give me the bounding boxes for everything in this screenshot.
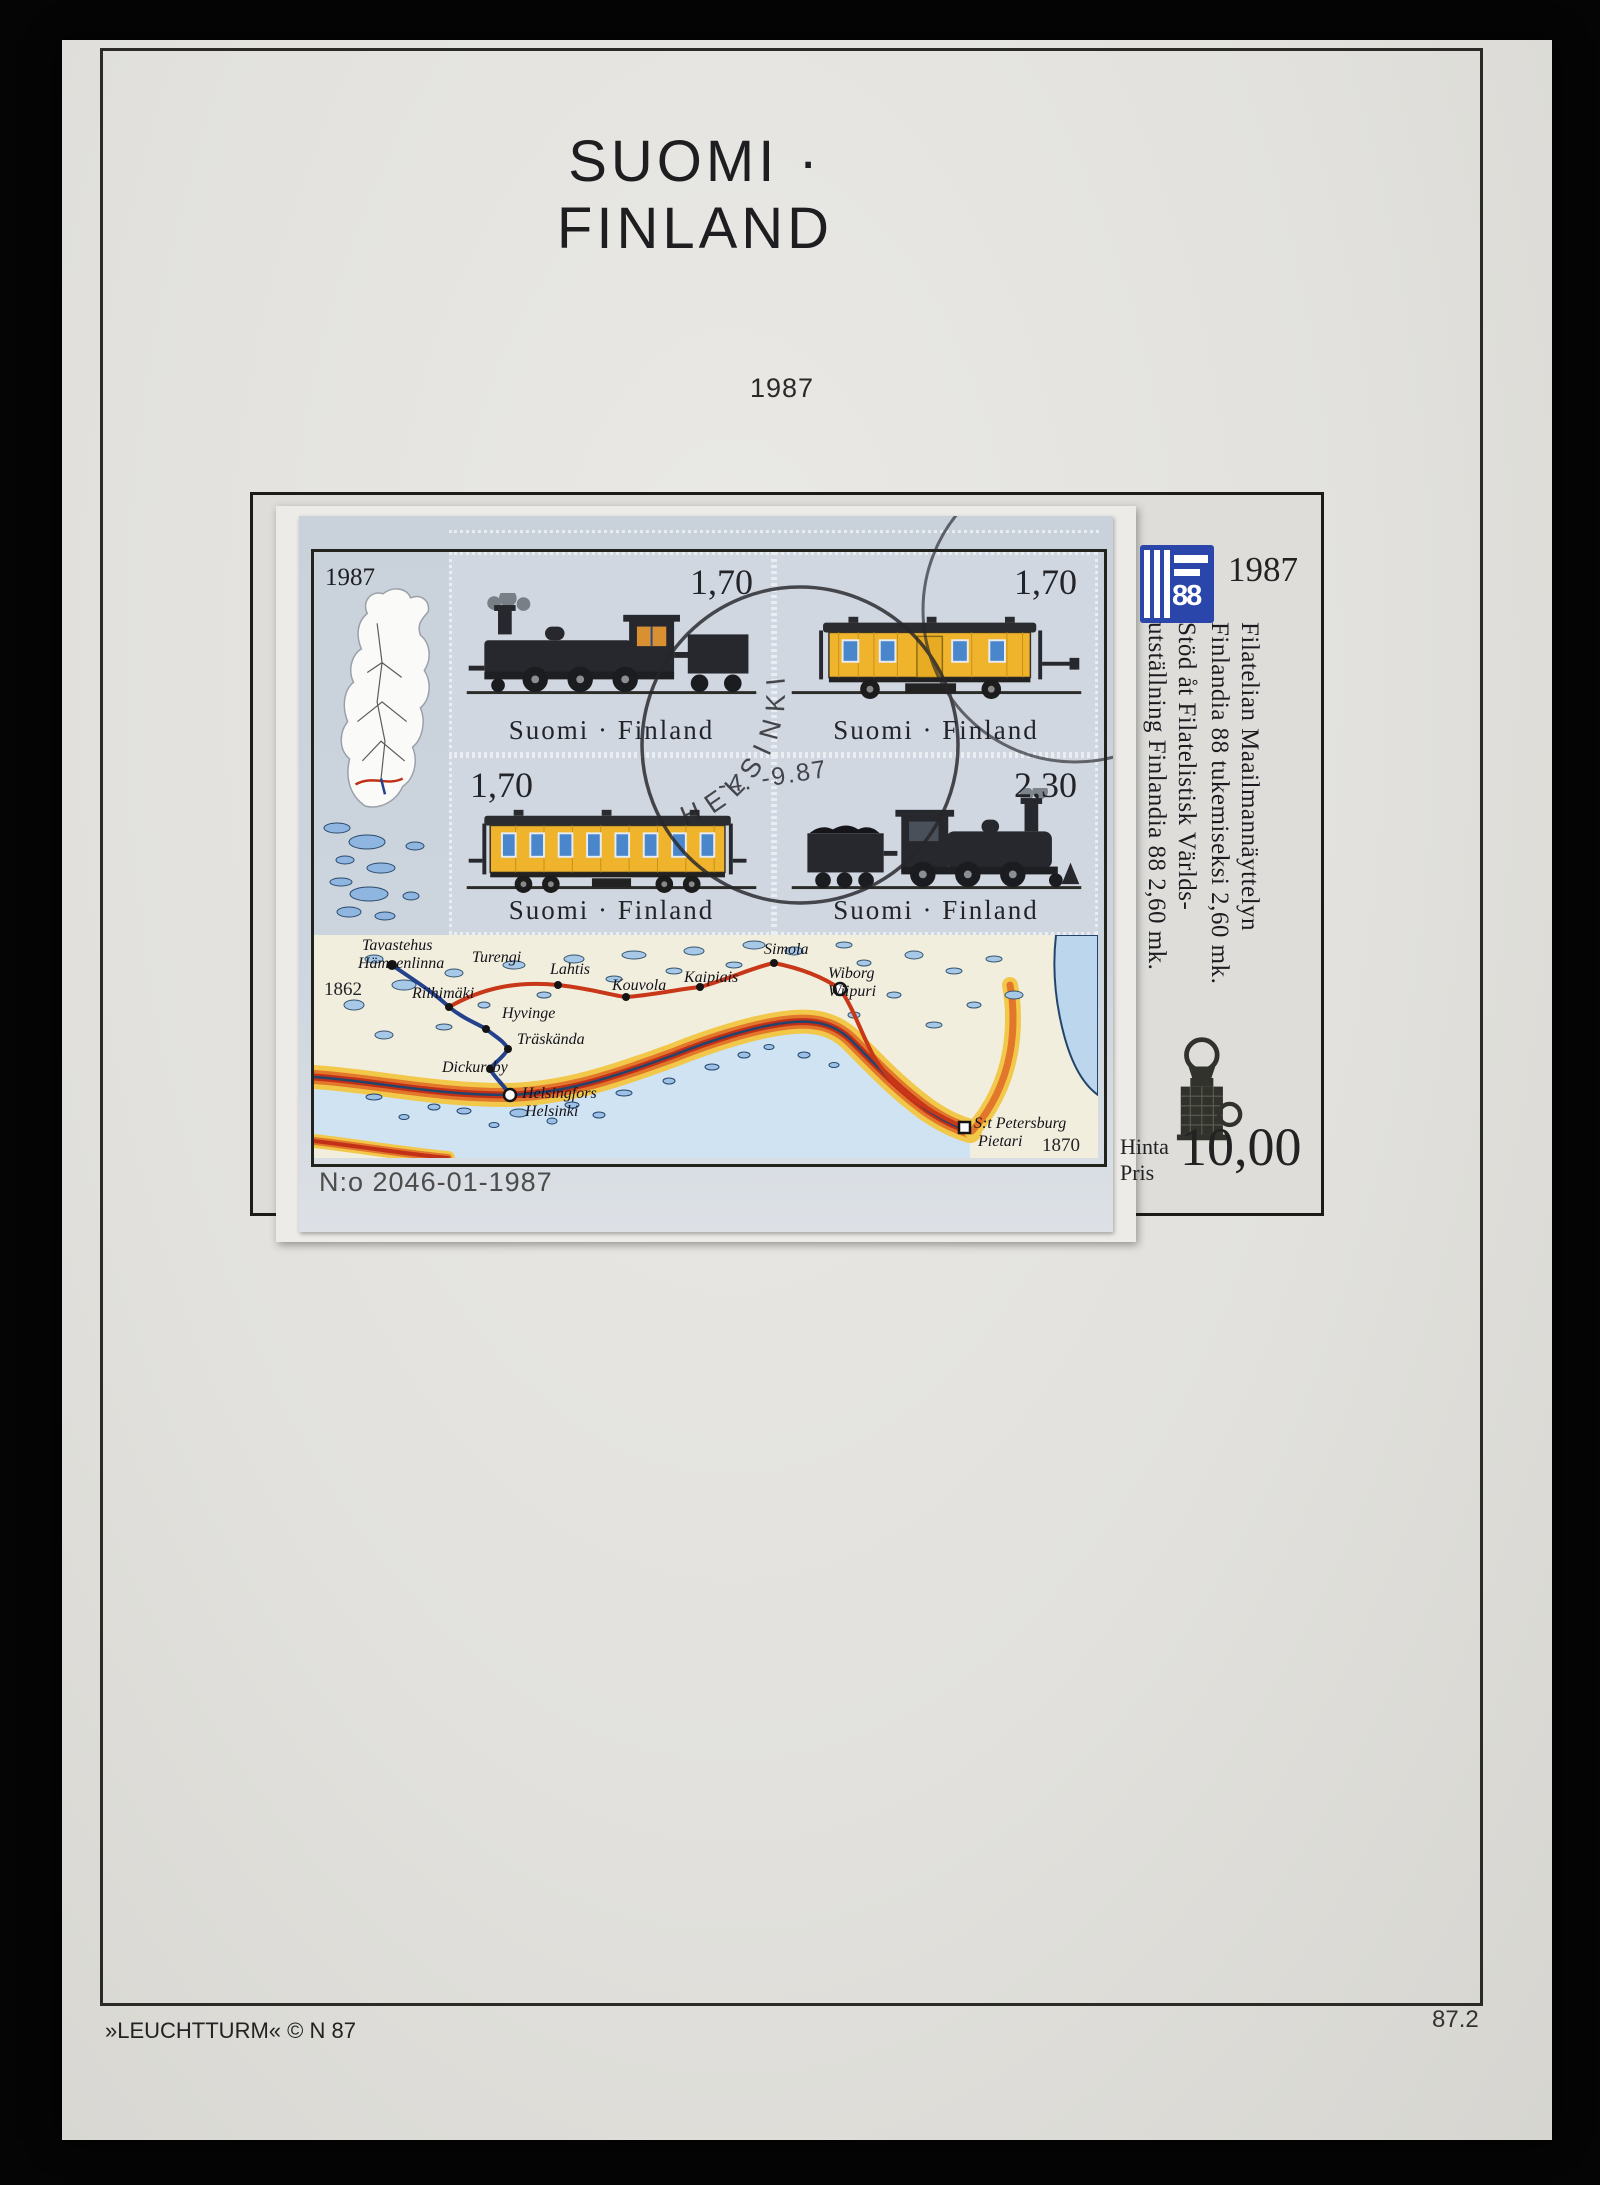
stamp-locomotive-tender: 2,30 Suomi · Finland bbox=[774, 755, 1098, 935]
stamp-value: 1,70 bbox=[1014, 561, 1077, 603]
map-label: Lahtis bbox=[550, 961, 590, 979]
info-line-4: utställning Finlandia 88 2,60 mk. bbox=[1142, 622, 1170, 970]
sheet-number: N:o 2046-01-1987 bbox=[319, 1167, 553, 1198]
info-year: 1987 bbox=[1228, 550, 1298, 590]
stamp-caption: Suomi · Finland bbox=[777, 895, 1095, 926]
stamp-mail-wagon: 1,70 Suomi · Finland bbox=[774, 552, 1098, 755]
stamp-caption: Suomi · Finland bbox=[452, 895, 771, 926]
price-label-fi: Hinta bbox=[1120, 1134, 1169, 1160]
map-label: Wiipuri bbox=[828, 983, 876, 1001]
map-year-1870: 1870 bbox=[1042, 1135, 1080, 1157]
stamp-caption: Suomi · Finland bbox=[452, 715, 771, 746]
price-value: 10,00 bbox=[1180, 1116, 1302, 1178]
publisher-credit: »LEUCHTTURM« © N 87 bbox=[105, 2018, 356, 2044]
map-label: Dickursby bbox=[442, 1059, 508, 1077]
map-label: Hämeenlinna bbox=[358, 955, 444, 973]
page-year-label: 1987 bbox=[722, 373, 842, 404]
map-label: Träskända bbox=[517, 1031, 585, 1049]
photo-of-album-page: SUOMI · FINLAND 1987 1987 bbox=[0, 0, 1600, 2185]
perforation-row bbox=[449, 530, 1099, 533]
page-title: SUOMI · FINLAND bbox=[445, 128, 945, 262]
souvenir-sheet: 1987 bbox=[299, 516, 1113, 1232]
steam-locomotive-illustration bbox=[455, 593, 768, 711]
map-label: Helsingfors bbox=[522, 1085, 597, 1103]
info-line-1: Filatelian Maailmannäyttelyn bbox=[1235, 622, 1263, 931]
map-label: Kouvola bbox=[612, 977, 666, 995]
info-line-2: Finlandia 88 tukemiseksi 2,60 mk. bbox=[1205, 622, 1233, 984]
stamp-value: 1,70 bbox=[690, 561, 753, 603]
map-label: Helsinki bbox=[525, 1103, 578, 1121]
map-label: S:t Petersburg bbox=[974, 1115, 1066, 1133]
stamp-caption: Suomi · Finland bbox=[777, 715, 1095, 746]
map-label: Simola bbox=[764, 941, 808, 959]
map-label: Kaipiais bbox=[684, 969, 738, 987]
map-label: Turengi bbox=[472, 949, 521, 967]
finland-silhouette bbox=[327, 584, 441, 812]
info-line-3: Stöd åt Filatelistisk Världs- bbox=[1172, 622, 1200, 910]
mail-wagon-illustration bbox=[780, 593, 1093, 711]
map-label: Pietari bbox=[978, 1133, 1022, 1151]
stamp-value: 2,30 bbox=[1014, 764, 1077, 806]
archipelago-pattern bbox=[315, 816, 443, 932]
map-label: Riihimäki bbox=[412, 985, 474, 1003]
map-label: Hyvinge bbox=[502, 1005, 555, 1023]
map-label: Tavastehus bbox=[362, 937, 433, 955]
stamp-passenger-wagon: 1,70 Suomi · Finland bbox=[449, 755, 774, 935]
stamp-locomotive: 1,70 Suomi · Finland bbox=[449, 552, 774, 755]
map-year-1862: 1862 bbox=[324, 979, 362, 1001]
finlandia-88-digits: 88 bbox=[1172, 580, 1200, 613]
map-label: Wiborg bbox=[828, 965, 875, 983]
price-labels: Hinta Pris bbox=[1120, 1134, 1169, 1186]
price-label-sv: Pris bbox=[1120, 1160, 1169, 1186]
page-number: 87.2 bbox=[1432, 2006, 1479, 2034]
album-page: SUOMI · FINLAND 1987 1987 bbox=[62, 40, 1552, 2140]
stamp-value: 1,70 bbox=[470, 764, 533, 806]
railway-map: Tavastehus Hämeenlinna Turengi Lahtis Ko… bbox=[314, 935, 1098, 1158]
